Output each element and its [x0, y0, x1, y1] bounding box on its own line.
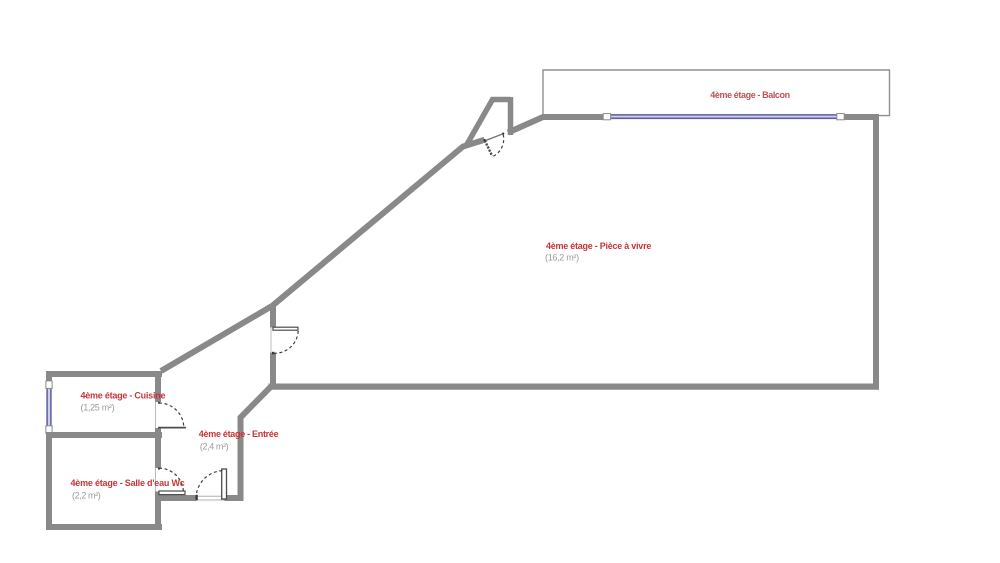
svg-text:4ème étage - Entrée: 4ème étage - Entrée [199, 429, 279, 439]
svg-text:4ème étage - Pièce à vivre: 4ème étage - Pièce à vivre [546, 241, 651, 251]
svg-text:(2,4 m²): (2,4 m²) [200, 442, 229, 452]
svg-text:4ème étage - Cuisine: 4ème étage - Cuisine [81, 391, 166, 401]
svg-text:4ème étage - Salle d'eau Wc: 4ème étage - Salle d'eau Wc [71, 478, 185, 488]
svg-text:(2,2 m²): (2,2 m²) [72, 491, 101, 501]
svg-text:(1,25 m²): (1,25 m²) [81, 403, 115, 413]
svg-text:(16,2 m²): (16,2 m²) [545, 253, 579, 263]
svg-text:4ème étage - Balcon: 4ème étage - Balcon [710, 90, 789, 100]
